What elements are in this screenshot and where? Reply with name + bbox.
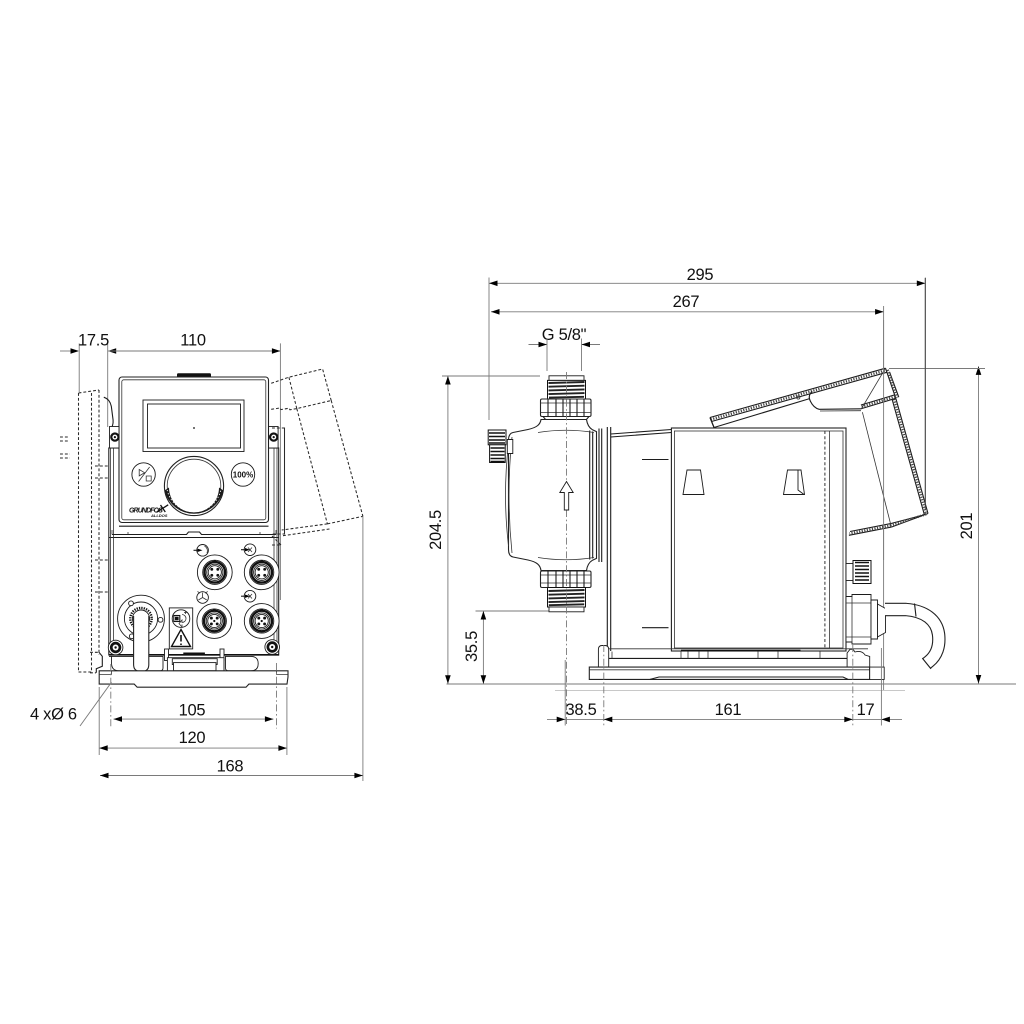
- svg-text:204.5: 204.5: [427, 510, 445, 550]
- svg-text:105: 105: [179, 702, 206, 720]
- svg-text:267: 267: [673, 293, 700, 311]
- svg-text:295: 295: [687, 266, 714, 284]
- svg-text:4 xØ 6: 4 xØ 6: [30, 706, 77, 724]
- svg-text:17.5: 17.5: [78, 332, 109, 350]
- svg-text:161: 161: [715, 701, 742, 719]
- svg-text:110: 110: [180, 332, 206, 350]
- svg-text:38.5: 38.5: [566, 701, 597, 719]
- svg-text:35.5: 35.5: [463, 631, 481, 662]
- svg-text:G 5/8": G 5/8": [542, 326, 587, 344]
- svg-text:168: 168: [217, 758, 244, 776]
- svg-text:ALLDOS: ALLDOS: [150, 513, 168, 518]
- svg-text:100%: 100%: [233, 471, 253, 480]
- svg-text:120: 120: [179, 729, 206, 747]
- svg-text:17: 17: [857, 701, 875, 719]
- svg-text:201: 201: [958, 513, 976, 540]
